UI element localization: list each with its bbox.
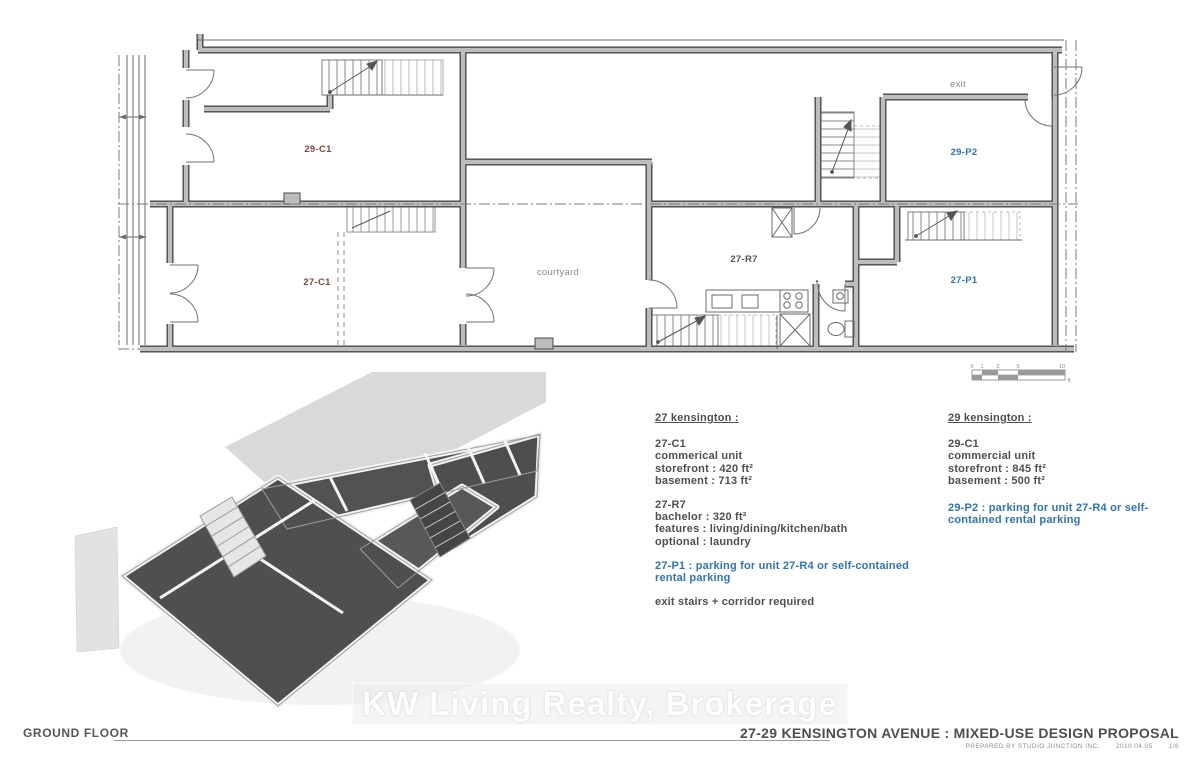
thin-lines [119, 40, 1064, 349]
label-exit: exit [950, 79, 966, 90]
unit-29c1-line: storefront : 845 ft² [948, 463, 1204, 475]
unit-27r7-line: features : living/dining/kitchen/bath [655, 523, 925, 535]
scale-tick-10: 10 [1059, 364, 1065, 370]
label-27-c1: 27-C1 [303, 277, 331, 288]
floor-plan: 29-C1 27-C1 27-R7 29-P2 27-P1 courtyard … [118, 34, 1082, 384]
note-29p2-parking: 29-P2 : parking for unit 27-R4 or self-c… [948, 502, 1193, 526]
unit-27c1-line: basement : 713 ft² [655, 475, 925, 487]
label-29-c1: 29-C1 [304, 144, 332, 155]
notes-29-heading: 29 kensington : [948, 412, 1204, 424]
page-number: 1/6 [1169, 743, 1179, 750]
unit-27r7-line: bachelor : 320 ft² [655, 511, 925, 523]
unit-27c1-title: 27-C1 [655, 438, 925, 450]
unit-27r7-title: 27-R7 [655, 499, 925, 511]
stove [780, 290, 808, 312]
unit-27r7-line: optional : laundry [655, 536, 925, 548]
sheet-date: 2010.04.05 [1116, 743, 1153, 750]
axon-view [75, 372, 546, 706]
sheet-svg: 29-C1 27-C1 27-R7 29-P2 27-P1 courtyard … [0, 0, 1204, 772]
shaft-x-box [780, 314, 810, 346]
floor-label: GROUND FLOOR [23, 726, 129, 740]
unit-29c1-line: basement : 500 ft² [948, 475, 1204, 487]
sheet-credits: PREPARED BY STUDIO JUNCTION INC. 2010.04… [965, 743, 1179, 750]
unit-29c1-line: commercial unit [948, 450, 1204, 462]
scale-bar: 0 1 2 5 10 ft [970, 364, 1071, 384]
sheet: 29-C1 27-C1 27-R7 29-P2 27-P1 courtyard … [0, 0, 1204, 772]
kitchen-counter [706, 290, 780, 312]
unit-27c1-line: commerical unit [655, 450, 925, 462]
footer-rule [114, 740, 830, 741]
toilet [828, 321, 854, 337]
sheet-title: 27-29 KENSINGTON AVENUE : MIXED-USE DESI… [740, 725, 1179, 741]
closet [772, 208, 792, 237]
stair-27c1 [347, 207, 435, 232]
label-27-p1: 27-P1 [951, 275, 978, 286]
scale-tick-0: 0 [970, 364, 973, 370]
unit-29c1-title: 29-C1 [948, 438, 1204, 450]
notes-29-kensington: 29 kensington : 29-C1 commercial unit st… [948, 412, 1204, 526]
unit-27c1-line: storefront : 420 ft² [655, 463, 925, 475]
prepared-by: PREPARED BY STUDIO JUNCTION INC. [965, 743, 1099, 750]
scale-tick-1: 1 [980, 364, 983, 370]
note-27p1-parking: 27-P1 : parking for unit 27-R4 or self-c… [655, 560, 917, 584]
label-27-r7: 27-R7 [730, 254, 757, 265]
dashed-partition [338, 232, 344, 345]
watermark-text: KW Living Realty, Brokerage [362, 685, 838, 723]
label-courtyard: courtyard [537, 267, 579, 278]
scale-tick-5: 5 [1016, 364, 1019, 370]
axon-wall-fragment [75, 527, 119, 652]
note-exit-stairs: exit stairs + corridor required [655, 596, 925, 608]
bath-sink [833, 290, 848, 303]
label-29-p2: 29-P2 [951, 147, 978, 158]
wall-cores [140, 34, 1074, 349]
wall-edges [140, 34, 1074, 349]
scale-tick-2: 2 [996, 364, 999, 370]
scale-unit: ft [1067, 378, 1071, 384]
property-lines [118, 40, 1078, 352]
watermark: KW Living Realty, Brokerage [352, 683, 848, 725]
notes-27-heading: 27 kensington : [655, 412, 925, 424]
notes-27-kensington: 27 kensington : 27-C1 commerical unit st… [655, 412, 925, 608]
